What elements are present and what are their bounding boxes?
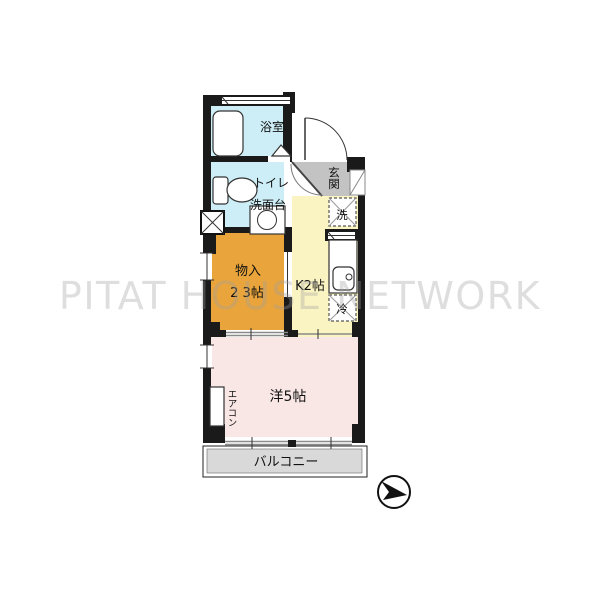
compass-icon: [378, 476, 410, 508]
window-top: [222, 97, 290, 104]
window-kitchen: [328, 232, 355, 239]
bathtub-icon: [213, 111, 243, 156]
entrance-label: 玄関: [327, 166, 341, 190]
aircon-label: エアコン: [226, 389, 238, 427]
pipe-space-icon: [201, 211, 224, 234]
balcony-label: バルコニー: [254, 455, 319, 470]
toilet-label: トイレ: [253, 176, 289, 190]
floorplan-image: 浴室 トイレ 洗面台 玄関 洗 K2帖 冷 物入 2 3帖 洋5帖 エアコン バ…: [0, 0, 600, 600]
laundry-label: 洗: [336, 208, 348, 222]
aircon-unit-icon: [210, 387, 224, 426]
bath-label: 浴室: [260, 119, 284, 134]
floorplan-svg: 浴室 トイレ 洗面台 玄関 洗 K2帖 冷 物入 2 3帖 洋5帖 エアコン バ…: [0, 0, 600, 600]
washstand-label: 洗面台: [250, 197, 286, 212]
watermark-text: PITAT HOUSE NETWORK: [59, 274, 541, 318]
shoe-cabinet-icon: [350, 170, 365, 195]
entrance-door-icon: [305, 118, 347, 160]
western-room-label: 洋5帖: [270, 389, 307, 405]
window-left-lower: [200, 345, 214, 368]
room-entrance: [292, 162, 350, 196]
bath-door-gap: [268, 156, 290, 162]
